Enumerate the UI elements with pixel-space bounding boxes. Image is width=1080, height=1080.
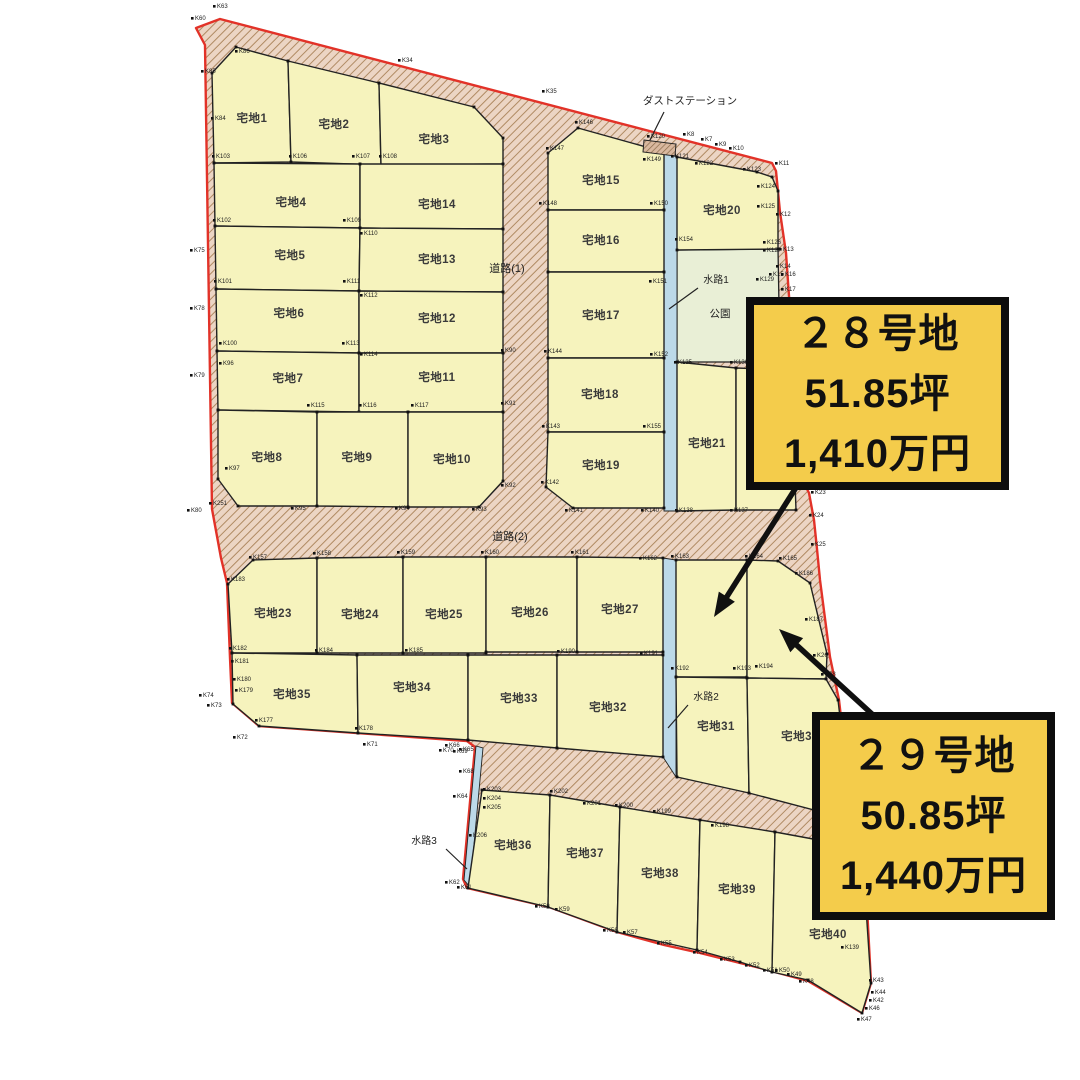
plot-label: 宅地26 bbox=[511, 605, 549, 619]
callout-28-area: 51.85坪 bbox=[804, 367, 950, 421]
survey-marker-label: K115 bbox=[311, 403, 325, 409]
survey-marker-label: K84 bbox=[215, 116, 226, 122]
survey-marker-label: K96 bbox=[223, 361, 234, 367]
survey-marker-label: K193 bbox=[737, 666, 752, 672]
survey-marker-label: K25 bbox=[815, 542, 826, 548]
plot-宅地26 bbox=[486, 557, 577, 652]
survey-marker-label: K184 bbox=[319, 648, 334, 654]
plot-label: 宅地8 bbox=[252, 450, 283, 464]
survey-marker-label: K49 bbox=[791, 972, 802, 978]
survey-marker-label: K12 bbox=[780, 212, 791, 218]
survey-marker-label: K125 bbox=[761, 204, 776, 210]
park-label: 公園 bbox=[710, 308, 731, 320]
survey-marker-label: K44 bbox=[875, 990, 886, 996]
survey-marker-label: K101 bbox=[218, 279, 233, 285]
survey-marker-label: K206 bbox=[473, 833, 488, 839]
survey-marker-label: K7 bbox=[705, 137, 713, 143]
survey-marker-label: K43 bbox=[873, 978, 884, 984]
survey-marker-label: K47 bbox=[861, 1017, 872, 1023]
plot-label: 宅地24 bbox=[341, 607, 379, 621]
survey-marker-label: K178 bbox=[359, 726, 374, 732]
survey-marker-label: K144 bbox=[548, 349, 563, 355]
callout-28-price: 1,410万円 bbox=[784, 427, 971, 481]
plot-label: 宅地40 bbox=[809, 927, 847, 941]
survey-marker-label: K192 bbox=[675, 666, 690, 672]
survey-marker-label: K68 bbox=[463, 769, 474, 775]
survey-marker-label: K151 bbox=[653, 279, 668, 285]
survey-marker-label: K183 bbox=[231, 577, 246, 583]
survey-marker-label: K100 bbox=[223, 341, 238, 347]
survey-marker-label: K17 bbox=[785, 287, 796, 293]
survey-marker-label: K10 bbox=[733, 146, 744, 152]
survey-marker-label: K122 bbox=[699, 161, 714, 167]
survey-marker-label: K124 bbox=[761, 184, 776, 190]
plot-宅地24 bbox=[317, 557, 403, 653]
plot-label: 宅地36 bbox=[494, 838, 532, 852]
survey-marker-label: K61 bbox=[461, 885, 472, 891]
survey-marker-label: K187 bbox=[809, 617, 824, 623]
survey-marker-label: K127 bbox=[767, 248, 782, 254]
plot-label: 宅地5 bbox=[275, 248, 306, 262]
survey-marker-label: K138 bbox=[679, 508, 694, 514]
survey-marker-label: K63 bbox=[217, 4, 228, 10]
survey-marker-label: K143 bbox=[546, 424, 561, 430]
survey-marker-label: K251 bbox=[213, 501, 228, 507]
survey-marker-label: K161 bbox=[575, 550, 590, 556]
plot-宅地25 bbox=[403, 557, 486, 653]
survey-marker-label: K53 bbox=[724, 957, 735, 963]
survey-marker-label: K107 bbox=[356, 154, 371, 160]
area-label: 道路(1) bbox=[489, 261, 524, 275]
plot-label: 宅地2 bbox=[319, 117, 350, 131]
dust-station-label: ダストステーション bbox=[643, 94, 737, 107]
survey-marker-label: K165 bbox=[783, 556, 798, 562]
plot-label: 宅地9 bbox=[342, 450, 373, 464]
survey-marker-label: K142 bbox=[545, 480, 560, 486]
plot-label: 宅地31 bbox=[697, 719, 735, 733]
survey-marker-label: K147 bbox=[550, 146, 565, 152]
plot-宅地6 bbox=[216, 289, 359, 353]
survey-marker-label: K14 bbox=[780, 264, 791, 270]
survey-marker-label: K154 bbox=[679, 237, 694, 243]
survey-marker-label: K157 bbox=[253, 555, 268, 561]
survey-marker-label: K85 bbox=[205, 69, 216, 75]
survey-marker-label: K80 bbox=[191, 508, 202, 514]
plot-label: 宅地20 bbox=[703, 203, 741, 217]
survey-marker-label: K34 bbox=[402, 58, 413, 64]
area-label: 水路2 bbox=[693, 690, 719, 703]
plot-label: 宅地37 bbox=[566, 846, 604, 860]
survey-marker-label: K13 bbox=[783, 247, 794, 253]
callout-28-title: ２８号地 bbox=[796, 307, 960, 361]
survey-marker-label: K54 bbox=[697, 950, 708, 956]
survey-marker-label: K60 bbox=[195, 16, 206, 22]
plot-宅地23 bbox=[228, 558, 317, 653]
survey-marker-label: K103 bbox=[216, 154, 231, 160]
survey-marker-label: K191 bbox=[644, 651, 659, 657]
survey-marker-label: K92 bbox=[505, 483, 516, 489]
survey-marker-label: K65 bbox=[463, 747, 474, 753]
plot-label: 宅地23 bbox=[254, 606, 292, 620]
plot-宅地14 bbox=[360, 164, 503, 229]
survey-marker-label: K117 bbox=[415, 403, 429, 409]
survey-marker-label: K108 bbox=[383, 154, 398, 160]
survey-marker-label: K135 bbox=[678, 360, 693, 366]
survey-marker-label: K91 bbox=[505, 401, 516, 407]
survey-marker-label: K204 bbox=[487, 796, 502, 802]
survey-marker-label: K97 bbox=[229, 466, 240, 472]
survey-marker-label: K159 bbox=[401, 550, 416, 556]
survey-marker-label: K78 bbox=[194, 306, 205, 312]
survey-marker-label: K9 bbox=[719, 142, 727, 148]
survey-marker-label: K186 bbox=[799, 571, 814, 577]
survey-marker-label: K8 bbox=[687, 132, 695, 138]
survey-marker-label: K201 bbox=[587, 801, 602, 807]
survey-marker-label: K46 bbox=[869, 1006, 880, 1012]
survey-marker-label: K106 bbox=[293, 154, 308, 160]
survey-marker-label: K179 bbox=[239, 688, 254, 694]
plot-宅地34 bbox=[357, 655, 468, 740]
survey-marker-label: K162 bbox=[643, 556, 658, 562]
plot-label: 宅地38 bbox=[641, 866, 679, 880]
survey-marker-label: K62 bbox=[449, 880, 460, 886]
land-subdivision-plan: 宅地1宅地2宅地3宅地4宅地14宅地5宅地13宅地6宅地12宅地7宅地11宅地8… bbox=[0, 0, 1080, 1080]
survey-marker-label: K73 bbox=[211, 703, 222, 709]
plot-label: 宅地35 bbox=[273, 687, 311, 701]
survey-marker-label: K95 bbox=[295, 506, 306, 512]
survey-marker-label: K48 bbox=[803, 979, 814, 985]
plot-label: 宅地25 bbox=[425, 607, 463, 621]
survey-marker-label: K59 bbox=[559, 907, 570, 913]
plot-label: 宅地12 bbox=[418, 311, 456, 325]
survey-marker-label: K90 bbox=[505, 348, 516, 354]
survey-marker-label: K52 bbox=[749, 963, 760, 969]
survey-marker-label: K75 bbox=[194, 248, 205, 254]
survey-marker-label: K112 bbox=[364, 293, 378, 299]
plot-宅地21 bbox=[677, 362, 736, 511]
survey-marker-label: K109 bbox=[347, 218, 362, 224]
plot-宅地39 bbox=[697, 820, 775, 972]
survey-marker-label: K58 bbox=[539, 904, 550, 910]
survey-marker-label: K86 bbox=[239, 49, 250, 55]
callout-29-title: ２９号地 bbox=[852, 729, 1016, 783]
survey-marker-label: K16 bbox=[785, 272, 796, 278]
survey-marker-label: K26 bbox=[817, 653, 828, 659]
callout-29-price: 1,440万円 bbox=[840, 849, 1027, 903]
survey-marker-label: K190 bbox=[561, 649, 576, 655]
plot-label: 宅地21 bbox=[688, 436, 726, 450]
survey-marker-label: K199 bbox=[657, 809, 672, 815]
survey-marker-label: K158 bbox=[317, 551, 332, 557]
survey-marker-label: K93 bbox=[476, 507, 487, 513]
survey-marker-label: K185 bbox=[409, 648, 424, 654]
survey-marker-label: K64 bbox=[457, 794, 468, 800]
survey-marker-label: K111 bbox=[347, 279, 361, 285]
plot-label: 宅地6 bbox=[274, 306, 305, 320]
plot-label: 宅地10 bbox=[433, 452, 471, 466]
plot-label: 宅地34 bbox=[393, 680, 431, 694]
plot-label: 宅地11 bbox=[418, 370, 455, 384]
callout-plot-28: ２８号地 51.85坪 1,410万円 bbox=[746, 297, 1009, 490]
survey-marker-label: K160 bbox=[485, 550, 500, 556]
survey-marker-label: K57 bbox=[627, 930, 638, 936]
survey-marker-label: K35 bbox=[546, 89, 557, 95]
survey-marker-label: K150 bbox=[654, 201, 669, 207]
survey-marker-label: K23 bbox=[815, 490, 826, 496]
survey-marker-label: K72 bbox=[237, 735, 248, 741]
survey-marker-label: K129 bbox=[760, 277, 775, 283]
survey-marker-label: K114 bbox=[364, 352, 378, 358]
survey-marker-label: K194 bbox=[759, 664, 774, 670]
survey-marker-label: K141 bbox=[569, 508, 584, 514]
survey-marker-label: K74 bbox=[203, 693, 214, 699]
plot-label: 宅地33 bbox=[500, 691, 538, 705]
survey-marker-label: K66 bbox=[449, 743, 460, 749]
survey-marker-label: K113 bbox=[346, 341, 360, 347]
survey-marker-label: K123 bbox=[747, 167, 762, 173]
survey-marker-label: K198 bbox=[715, 823, 730, 829]
survey-marker-label: K102 bbox=[217, 218, 232, 224]
survey-marker-label: K152 bbox=[654, 352, 669, 358]
survey-marker-label: K137 bbox=[734, 508, 749, 514]
survey-marker-label: K205 bbox=[487, 805, 502, 811]
plot-label: 宅地14 bbox=[418, 197, 456, 211]
callout-29-area: 50.85坪 bbox=[860, 789, 1006, 843]
area-label: 水路3 bbox=[411, 834, 437, 847]
survey-marker-label: K42 bbox=[873, 998, 884, 1004]
plot-label: 宅地32 bbox=[589, 700, 627, 714]
plot-label: 宅地16 bbox=[582, 233, 620, 247]
survey-marker-label: K110 bbox=[364, 231, 378, 237]
survey-marker-label: K79 bbox=[194, 373, 205, 379]
plot-label: 宅地39 bbox=[718, 882, 756, 896]
plot-label: 宅地15 bbox=[582, 173, 620, 187]
plot-label: 宅地4 bbox=[276, 195, 307, 209]
plot-label: 宅地1 bbox=[237, 111, 268, 125]
survey-marker-label: K182 bbox=[233, 646, 248, 652]
survey-marker-label: K203 bbox=[487, 787, 502, 793]
survey-marker-label: K139 bbox=[845, 945, 860, 951]
survey-marker-label: K24 bbox=[813, 513, 824, 519]
survey-marker-label: K180 bbox=[237, 677, 252, 683]
survey-marker-label: K120 bbox=[651, 134, 666, 140]
survey-marker-label: K155 bbox=[647, 424, 662, 430]
plot-label: 宅地19 bbox=[582, 458, 620, 472]
survey-marker-label: K56 bbox=[607, 928, 618, 934]
area-label: 道路(2) bbox=[492, 529, 527, 543]
plot-label: 宅地17 bbox=[582, 308, 620, 322]
plot-label: 宅地27 bbox=[601, 602, 639, 616]
survey-marker-label: K121 bbox=[675, 154, 690, 160]
survey-marker-label: K148 bbox=[543, 201, 558, 207]
survey-marker-label: K140 bbox=[645, 508, 660, 514]
plot-label: 宅地13 bbox=[418, 252, 456, 266]
survey-marker-label: K11 bbox=[779, 161, 790, 167]
survey-marker-label: K71 bbox=[367, 742, 378, 748]
plot-宅地4 bbox=[214, 163, 360, 228]
survey-marker-label: K116 bbox=[363, 403, 377, 409]
plot-label: 宅地3 bbox=[419, 132, 450, 146]
plot-label: 宅地7 bbox=[273, 371, 304, 385]
survey-marker-label: K202 bbox=[554, 789, 569, 795]
callout-plot-29: ２９号地 50.85坪 1,440万円 bbox=[812, 712, 1055, 920]
survey-marker-label: K200 bbox=[619, 803, 634, 809]
survey-marker-label: K181 bbox=[235, 659, 250, 665]
survey-marker-label: K94 bbox=[399, 506, 410, 512]
survey-marker-label: K149 bbox=[647, 157, 662, 163]
survey-marker-label: K55 bbox=[661, 941, 672, 947]
plot-宅地1 bbox=[212, 47, 291, 163]
survey-marker-label: K177 bbox=[259, 718, 274, 724]
plot-label: 宅地18 bbox=[581, 387, 619, 401]
survey-marker-label: K126 bbox=[767, 240, 782, 246]
survey-marker-label: K146 bbox=[579, 120, 594, 126]
survey-marker-label: K163 bbox=[675, 554, 690, 560]
area-label: 水路1 bbox=[703, 273, 729, 286]
